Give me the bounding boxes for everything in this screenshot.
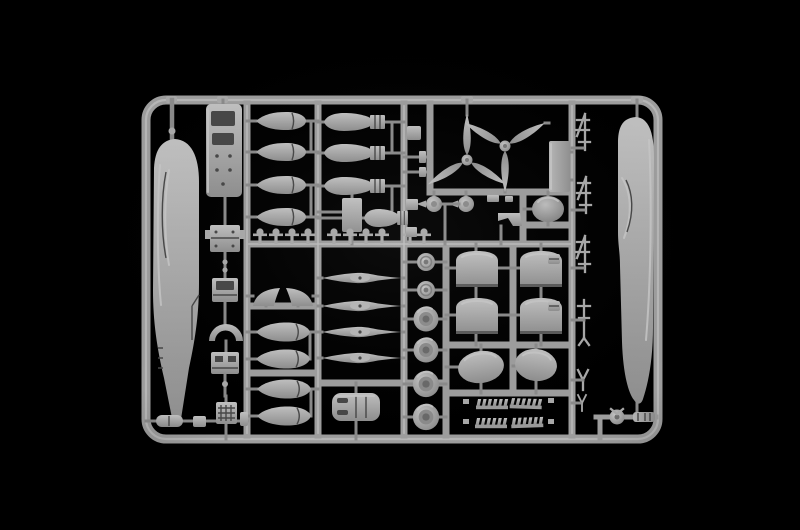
sprue-scene: [0, 0, 800, 530]
vignette: [0, 0, 800, 530]
sprue-photo: [0, 0, 800, 530]
